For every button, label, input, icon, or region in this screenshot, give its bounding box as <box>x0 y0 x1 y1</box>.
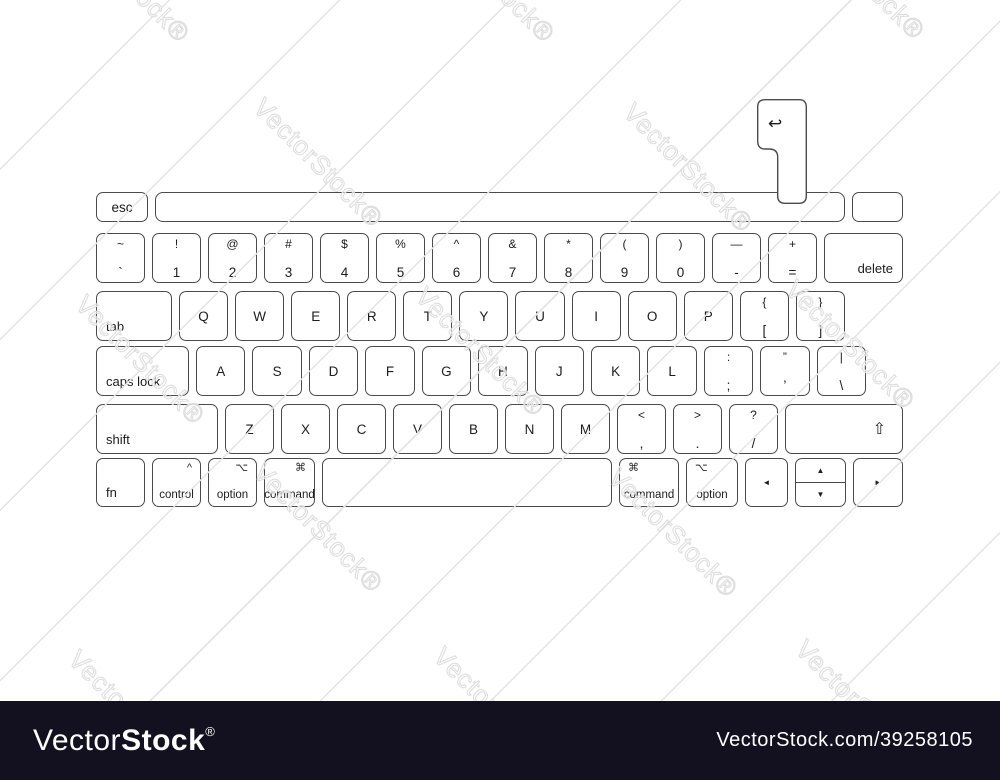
key-f[interactable]: F <box>365 346 414 396</box>
key-p[interactable]: P <box>684 291 733 341</box>
key-bottom-glyph: - <box>734 266 739 280</box>
key-minus[interactable]: — - <box>712 233 761 283</box>
key-1[interactable]: ! 1 <box>152 233 201 283</box>
key-top-glyph: & <box>508 238 516 250</box>
footer-logo-registered-mark: ® <box>205 724 215 739</box>
option-icon: ⌥ <box>695 463 708 474</box>
key-esc[interactable]: esc <box>96 192 148 222</box>
key-q[interactable]: Q <box>179 291 228 341</box>
key-caps-lock[interactable]: caps lock <box>96 346 189 396</box>
key-top-glyph: # <box>285 238 292 250</box>
key-top-glyph: } <box>818 296 822 308</box>
key-o[interactable]: O <box>628 291 677 341</box>
key-i[interactable]: I <box>572 291 621 341</box>
key-7[interactable]: & 7 <box>488 233 537 283</box>
footer-url: VectorStock.com/39258105 <box>716 729 973 752</box>
keyboard-row-top: tab Q W E R T Y U I O P { [ } ] <box>96 291 903 341</box>
key-top-glyph: { <box>762 296 766 308</box>
key-bottom-glyph: ] <box>819 324 823 338</box>
key-command-right[interactable]: ⌘ command <box>619 458 679 507</box>
watermark-text: VectorStock® <box>789 0 931 46</box>
keyboard: esc ~ ` ! 1 @ 2 # 3 $ 4 <box>96 192 903 507</box>
command-icon: ⌘ <box>628 463 639 474</box>
key-9[interactable]: ( 9 <box>600 233 649 283</box>
key-e[interactable]: E <box>291 291 340 341</box>
key-top-glyph: : <box>727 351 730 363</box>
stock-image-canvas: esc ~ ` ! 1 @ 2 # 3 $ 4 <box>0 0 1000 780</box>
key-bottom-glyph: [ <box>762 324 766 338</box>
key-u[interactable]: U <box>515 291 564 341</box>
key-8[interactable]: * 8 <box>544 233 593 283</box>
key-label: option <box>217 490 248 502</box>
key-0[interactable]: ) 0 <box>656 233 705 283</box>
key-c[interactable]: C <box>337 404 386 454</box>
key-bottom-glyph: 5 <box>397 266 405 280</box>
key-quote[interactable]: ” ’ <box>760 346 809 396</box>
key-6[interactable]: ^ 6 <box>432 233 481 283</box>
key-bottom-glyph: 7 <box>509 266 517 280</box>
key-equals[interactable]: + = <box>768 233 817 283</box>
key-bottom-glyph: 1 <box>173 266 181 280</box>
keyboard-row-numbers: ~ ` ! 1 @ 2 # 3 $ 4 % 5 <box>96 233 903 283</box>
key-bottom-glyph: ` <box>118 266 123 280</box>
key-bottom-glyph: 2 <box>229 266 237 280</box>
keyboard-row-bottom: shift Z X C V B N M < , > . ? / ⇧ <box>96 404 903 454</box>
footer-logo-light: Vector <box>33 724 121 757</box>
key-return[interactable]: ↩ <box>757 99 807 204</box>
shift-up-arrow-icon: ⇧ <box>873 419 886 439</box>
key-comma[interactable]: < , <box>617 404 666 454</box>
keyboard-row-modifiers: fn ^ control ⌥ option ⌘ command ⌘ comman… <box>96 458 903 507</box>
control-caret-icon: ^ <box>187 463 192 474</box>
key-top-glyph: < <box>638 409 645 421</box>
key-m[interactable]: M <box>561 404 610 454</box>
option-icon: ⌥ <box>235 463 248 474</box>
key-slash[interactable]: ? / <box>729 404 778 454</box>
key-a[interactable]: A <box>196 346 245 396</box>
watermark-text: VectorStock® <box>419 0 561 49</box>
key-r[interactable]: R <box>347 291 396 341</box>
key-3[interactable]: # 3 <box>264 233 313 283</box>
key-shift-right[interactable]: ⇧ <box>785 404 903 454</box>
key-semicolon[interactable]: : ; <box>704 346 753 396</box>
key-top-glyph: + <box>789 238 796 250</box>
key-w[interactable]: W <box>235 291 284 341</box>
key-left-bracket[interactable]: { [ <box>740 291 789 341</box>
key-bottom-glyph: ’ <box>783 379 786 393</box>
key-top-glyph: @ <box>226 238 238 250</box>
key-power[interactable] <box>852 192 903 222</box>
key-shift-left[interactable]: shift <box>96 404 218 454</box>
key-bottom-glyph: / <box>752 437 756 451</box>
key-arrow-right[interactable]: ► <box>853 458 903 507</box>
key-top-glyph: ” <box>783 351 787 363</box>
footer-logo-bold: Stock <box>121 724 205 757</box>
return-icon: ↩ <box>768 114 782 134</box>
arrow-left-icon: ◄ <box>763 478 771 487</box>
key-delete[interactable]: delete <box>824 233 903 283</box>
key-backslash[interactable]: | \ <box>817 346 866 396</box>
key-label: control <box>159 490 194 502</box>
key-5[interactable]: % 5 <box>376 233 425 283</box>
key-j[interactable]: J <box>535 346 584 396</box>
key-top-glyph: $ <box>341 238 348 250</box>
key-top-glyph: ^ <box>454 238 460 250</box>
key-command-left[interactable]: ⌘ command <box>264 458 315 507</box>
touch-bar[interactable] <box>155 192 845 222</box>
key-bottom-glyph: 3 <box>285 266 293 280</box>
key-top-glyph: ) <box>679 238 683 250</box>
key-bottom-glyph: 4 <box>341 266 349 280</box>
key-top-glyph: | <box>840 351 843 363</box>
key-arrow-left[interactable]: ◄ <box>745 458 788 507</box>
key-bottom-glyph: = <box>789 266 797 280</box>
key-fn[interactable]: fn <box>96 458 145 507</box>
vectorstock-logo: VectorStock® <box>33 724 215 758</box>
key-b[interactable]: B <box>449 404 498 454</box>
command-icon: ⌘ <box>295 463 306 474</box>
key-top-glyph: > <box>694 409 701 421</box>
key-d[interactable]: D <box>309 346 358 396</box>
key-bottom-glyph: 0 <box>677 266 685 280</box>
key-l[interactable]: L <box>647 346 696 396</box>
key-option-left[interactable]: ⌥ option <box>208 458 257 507</box>
key-bottom-glyph: . <box>696 437 700 451</box>
key-top-glyph: ! <box>175 238 178 250</box>
key-control[interactable]: ^ control <box>152 458 201 507</box>
key-top-glyph: ( <box>623 238 627 250</box>
key-top-glyph: ~ <box>117 238 124 250</box>
key-n[interactable]: N <box>505 404 554 454</box>
key-bottom-glyph: 9 <box>621 266 629 280</box>
key-top-glyph: ? <box>750 409 757 421</box>
keyboard-row-home: caps lock A S D F G H J K L : ; ” ’ | \ <box>96 346 903 396</box>
key-period[interactable]: > . <box>673 404 722 454</box>
arrow-right-icon: ► <box>874 478 882 487</box>
key-h[interactable]: H <box>478 346 527 396</box>
key-top-glyph: % <box>395 238 406 250</box>
key-z[interactable]: Z <box>225 404 274 454</box>
arrow-up-icon[interactable]: ▲ <box>796 459 845 482</box>
key-space[interactable] <box>322 458 612 507</box>
key-v[interactable]: V <box>393 404 442 454</box>
key-right-bracket[interactable]: } ] <box>796 291 845 341</box>
key-top-glyph: * <box>566 238 571 250</box>
footer-bar: VectorStock® VectorStock.com/39258105 <box>0 701 1000 780</box>
arrow-down-icon[interactable]: ▼ <box>796 482 845 506</box>
key-4[interactable]: $ 4 <box>320 233 369 283</box>
key-label: option <box>696 490 727 502</box>
key-x[interactable]: X <box>281 404 330 454</box>
key-y[interactable]: Y <box>459 291 508 341</box>
key-arrow-up-down[interactable]: ▲ ▼ <box>795 458 846 507</box>
key-s[interactable]: S <box>252 346 301 396</box>
key-option-right[interactable]: ⌥ option <box>686 458 738 507</box>
key-label: command <box>624 490 675 502</box>
key-bottom-glyph: , <box>640 437 644 451</box>
key-bottom-glyph: 6 <box>453 266 461 280</box>
key-g[interactable]: G <box>422 346 471 396</box>
key-2[interactable]: @ 2 <box>208 233 257 283</box>
key-tab[interactable]: tab <box>96 291 172 341</box>
watermark-text: VectorStock® <box>54 0 196 49</box>
key-bottom-glyph: ; <box>727 379 731 393</box>
key-bottom-glyph: 8 <box>565 266 573 280</box>
key-label: command <box>264 490 315 502</box>
key-bottom-glyph: \ <box>839 379 843 393</box>
key-k[interactable]: K <box>591 346 640 396</box>
key-grave[interactable]: ~ ` <box>96 233 145 283</box>
key-top-glyph: — <box>731 238 743 250</box>
key-t[interactable]: T <box>403 291 452 341</box>
